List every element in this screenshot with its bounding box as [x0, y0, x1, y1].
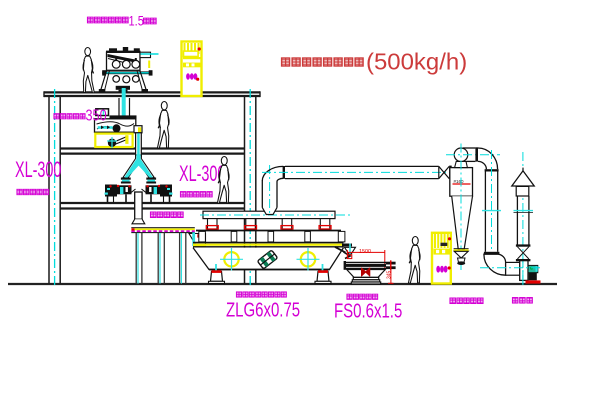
- svg-text:345: 345: [387, 270, 393, 279]
- svg-text:ZLG6x0.75: ZLG6x0.75: [226, 298, 300, 321]
- svg-text:FS0.6x1.5: FS0.6x1.5: [334, 299, 402, 322]
- svg-text:#160: #160: [454, 179, 465, 184]
- svg-text:(500kg/h): (500kg/h): [366, 50, 467, 76]
- svg-text:1.5: 1.5: [129, 13, 144, 28]
- svg-text:350: 350: [86, 107, 107, 124]
- svg-text:XL-300: XL-300: [15, 157, 61, 182]
- svg-text:1500: 1500: [359, 249, 371, 255]
